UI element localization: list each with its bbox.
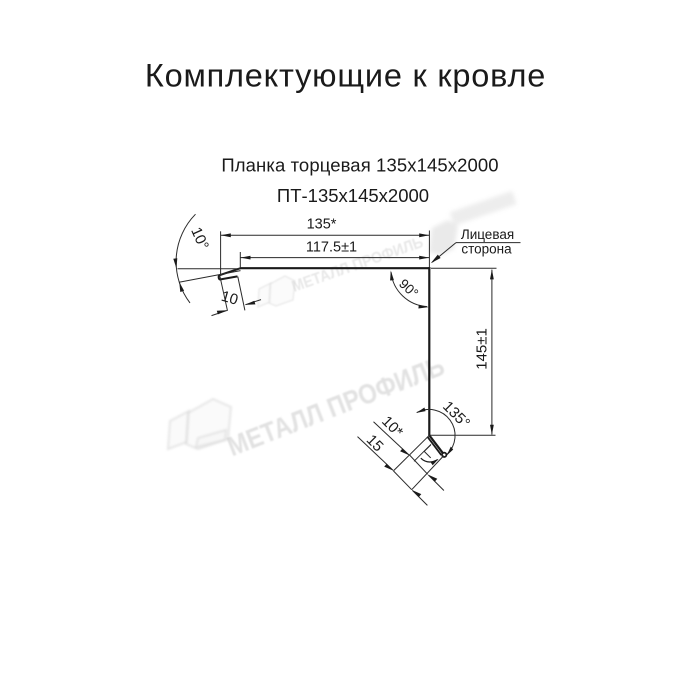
svg-text:135*: 135* [307, 217, 337, 233]
svg-text:145±1: 145±1 [474, 328, 491, 370]
svg-text:Лицевая: Лицевая [461, 227, 514, 242]
svg-text:сторона: сторона [461, 242, 512, 257]
svg-text:Комплектующие к кровле: Комплектующие к кровле [145, 58, 546, 94]
svg-text:Планка торцевая 135х145х2000: Планка торцевая 135х145х2000 [221, 155, 498, 176]
svg-text:ПТ-135х145х2000: ПТ-135х145х2000 [277, 185, 429, 206]
svg-text:117.5±1: 117.5±1 [306, 240, 357, 256]
